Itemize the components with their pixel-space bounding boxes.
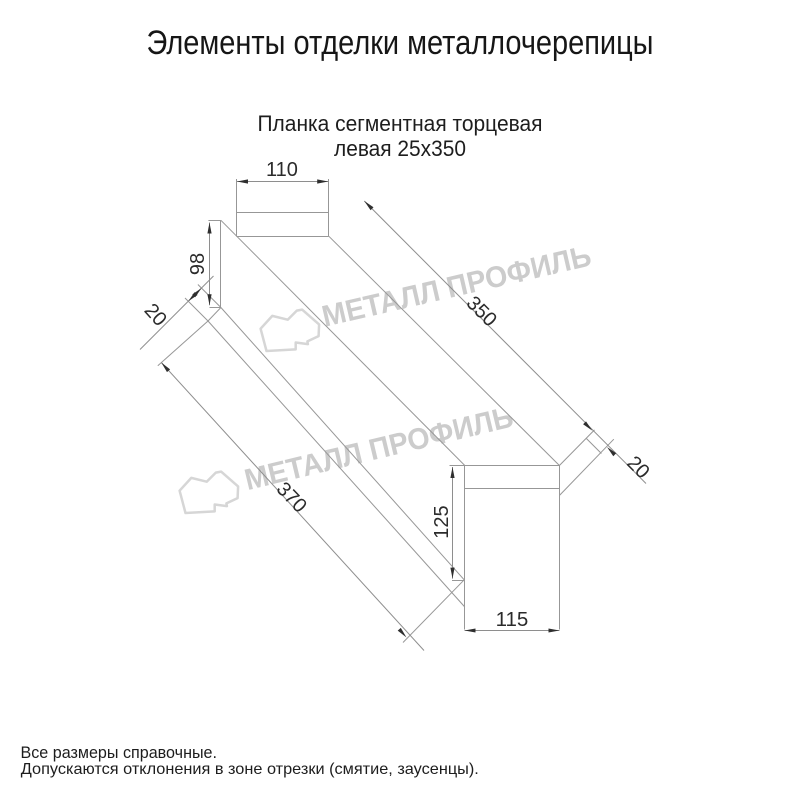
svg-text:левая 25х350: левая 25х350 xyxy=(334,136,466,161)
svg-text:Допускаются отклонения в зоне: Допускаются отклонения в зоне отрезки (с… xyxy=(21,761,479,778)
svg-text:115: 115 xyxy=(496,608,529,631)
svg-text:Элементы отделки металлочерепи: Элементы отделки металлочерепицы xyxy=(147,24,654,62)
svg-text:98: 98 xyxy=(187,253,209,275)
svg-text:125: 125 xyxy=(431,505,453,538)
svg-text:110: 110 xyxy=(266,159,298,181)
svg-text:Все размеры справочные.: Все размеры справочные. xyxy=(21,744,218,762)
svg-text:Планка сегментная торцевая: Планка сегментная торцевая xyxy=(258,111,543,136)
